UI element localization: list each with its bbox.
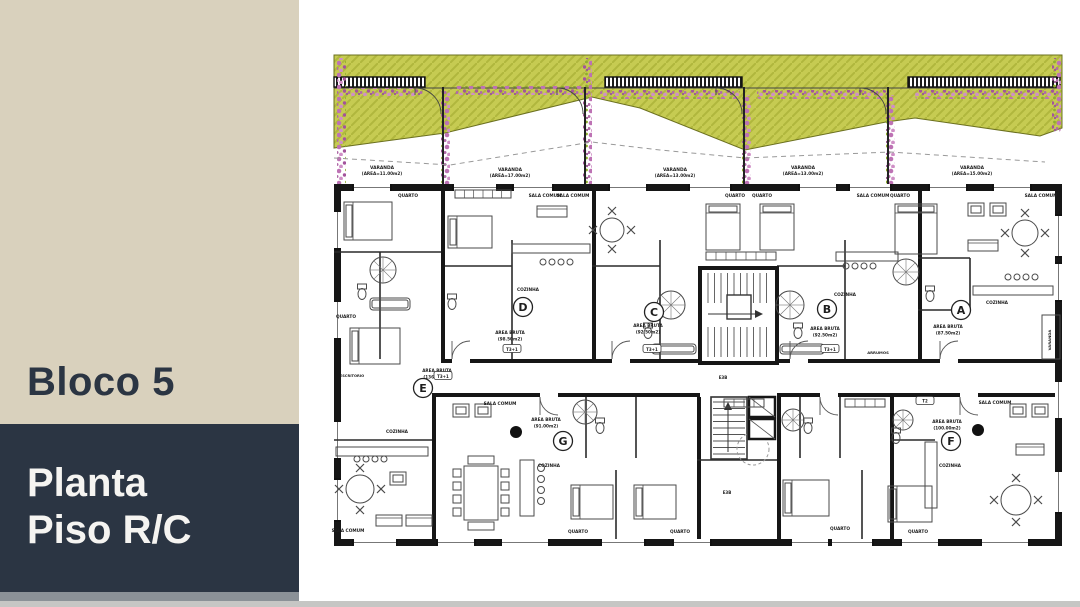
- sofa: [1016, 444, 1044, 455]
- room-label: SALA COMUM: [332, 528, 365, 534]
- window-jamb: [500, 539, 502, 546]
- wall-segment: [978, 393, 1055, 397]
- armchair-seat: [1013, 407, 1023, 414]
- armchair: [390, 472, 406, 485]
- flower-strip-horizontal: [600, 90, 740, 99]
- window-jamb: [890, 184, 892, 191]
- terrain-line: [334, 142, 1045, 165]
- unit-area-value: (92.50m2): [636, 330, 660, 335]
- balcony-area-label: (AREA=13.00m2): [783, 171, 824, 176]
- sofa: [406, 515, 432, 526]
- window-jamb: [608, 184, 610, 191]
- window-jamb: [548, 539, 550, 546]
- unit-area-value: (92.50m2): [813, 333, 837, 338]
- balcony-area-label: (AREA=11.00m2): [362, 171, 403, 176]
- chair-x: [608, 207, 616, 215]
- kitchen-counter: [512, 244, 590, 253]
- bed-pillow: [636, 488, 642, 516]
- shower-spoke: [790, 305, 800, 315]
- armchair-seat: [478, 407, 488, 414]
- footer-strip-light: [0, 601, 1080, 607]
- shower-spoke: [790, 295, 800, 305]
- wall-segment: [958, 359, 1055, 363]
- armchair-seat: [456, 407, 466, 414]
- window-jamb: [848, 184, 850, 191]
- window-jamb: [334, 210, 341, 212]
- window-jamb: [790, 539, 792, 546]
- unit-letter: C: [650, 306, 658, 319]
- kitchen-counter: [520, 460, 534, 516]
- window-jamb: [1028, 539, 1030, 546]
- room-label: SALA COMUM: [979, 400, 1012, 406]
- window-jamb: [334, 520, 341, 522]
- bed-pillow: [450, 219, 456, 245]
- window-jamb: [1030, 184, 1032, 191]
- bed-pillow: [709, 206, 737, 212]
- armchair: [1010, 404, 1026, 417]
- wall-segment: [838, 393, 960, 397]
- unit-letter: G: [558, 435, 567, 448]
- chair-x: [1001, 229, 1009, 237]
- chair: [501, 508, 509, 516]
- window-jamb: [938, 539, 940, 546]
- window-jamb: [512, 184, 514, 191]
- window-jamb: [1055, 418, 1062, 420]
- round-table: [600, 218, 624, 242]
- wall-segment: [592, 188, 596, 359]
- window-jamb: [872, 539, 874, 546]
- armchair-seat: [993, 206, 1003, 213]
- toilet: [804, 423, 812, 434]
- chair: [468, 456, 494, 464]
- armchair-seat: [1035, 407, 1045, 414]
- window-jamb: [334, 338, 341, 340]
- hob-circle: [852, 263, 858, 269]
- flower-strip-horizontal: [757, 90, 887, 99]
- flower-strip-vertical: [337, 58, 346, 188]
- bed: [448, 216, 492, 248]
- unit-area-label: AREA BRUTA: [531, 417, 561, 422]
- hob-circle: [549, 259, 555, 265]
- window-jamb: [396, 539, 398, 546]
- window-jamb: [600, 539, 602, 546]
- toilet: [448, 299, 456, 310]
- chair: [501, 482, 509, 490]
- hob-circle: [558, 259, 564, 265]
- window-jamb: [1055, 470, 1062, 472]
- floor-title: Planta Piso R/C: [27, 460, 191, 554]
- chair-x: [1021, 249, 1029, 257]
- block-title: Bloco 5: [27, 360, 175, 405]
- floor-title-line2: Piso R/C: [27, 507, 191, 554]
- wall-segment: [630, 359, 700, 363]
- chair-x: [356, 506, 364, 514]
- wall-segment: [441, 359, 452, 363]
- hob-circle: [1014, 274, 1020, 280]
- chair-x: [990, 496, 998, 504]
- hob-circle: [363, 456, 369, 462]
- window-jamb: [830, 539, 832, 546]
- door-arc: [452, 341, 470, 359]
- window-jamb: [966, 184, 968, 191]
- stair-core: [700, 268, 777, 465]
- chair-x: [1021, 209, 1029, 217]
- round-table: [1012, 220, 1038, 246]
- wall-segment: [558, 393, 700, 397]
- armchair-seat: [971, 206, 981, 213]
- sofa: [376, 515, 402, 526]
- room-label: QUARTO: [670, 529, 690, 535]
- unit-area-value: (91.00m2): [534, 424, 558, 429]
- toilet: [596, 423, 604, 434]
- window-jamb: [334, 300, 341, 302]
- shower-spoke: [780, 295, 790, 305]
- chair: [453, 508, 461, 516]
- shower-spoke: [785, 412, 793, 420]
- room-label: SALA COMUM: [857, 193, 890, 199]
- shower-spoke: [897, 272, 906, 281]
- room-label: ESCRITORIO: [340, 374, 364, 378]
- window-jamb: [992, 184, 994, 191]
- unit-area-label: AREA BRUTA: [810, 326, 840, 331]
- window-jamb: [1055, 262, 1062, 264]
- chair-x: [608, 245, 616, 253]
- balcony-area-label: (AREA=17.00m2): [490, 173, 531, 178]
- stair-landing: [727, 295, 751, 319]
- terrain-dashed-line: [334, 142, 1045, 165]
- round-table: [1001, 485, 1031, 515]
- room-label: E3B: [719, 375, 728, 380]
- armchair: [453, 404, 469, 417]
- flower-strip-horizontal: [340, 88, 423, 97]
- chair-x: [1034, 496, 1042, 504]
- window-jamb: [928, 184, 930, 191]
- unit-area-value: (100.00m2): [933, 426, 960, 431]
- window-jamb: [334, 248, 341, 250]
- wall-segment: [432, 393, 436, 539]
- bed: [634, 485, 676, 519]
- window-jamb: [334, 458, 341, 460]
- wall-segment: [777, 397, 781, 539]
- shower-spoke: [896, 413, 903, 420]
- balcony-area-label: (AREA=15.00m2): [952, 171, 993, 176]
- floor-title-line1: Planta: [27, 460, 191, 507]
- unit-letter: E: [419, 382, 427, 395]
- window-jamb: [646, 184, 648, 191]
- shower-spoke: [661, 295, 671, 305]
- hob-circle: [1005, 274, 1011, 280]
- window-jamb: [980, 539, 982, 546]
- tipologia-tag: T3+1: [646, 347, 658, 352]
- unit-area-label: AREA BRUTA: [495, 330, 525, 335]
- window-jamb: [1055, 256, 1062, 258]
- chair-x: [1012, 518, 1020, 526]
- window-jamb: [1055, 214, 1062, 216]
- room-label: QUARTO: [725, 193, 745, 199]
- column-dot: [972, 424, 984, 436]
- balcony-area-label: (AREA=13.00m2): [655, 173, 696, 178]
- shower-spoke: [577, 412, 585, 420]
- railing-bar: [334, 77, 425, 87]
- hob-circle: [354, 456, 360, 462]
- sofa: [968, 240, 998, 251]
- tipologia-tag: T3+1: [824, 347, 836, 352]
- armchair-seat: [393, 475, 403, 482]
- tipologia-tag: T3+1: [437, 374, 449, 379]
- shower-spoke: [577, 404, 585, 412]
- room-label: QUARTO: [908, 529, 928, 535]
- unit-area-label: AREA BRUTA: [932, 419, 962, 424]
- window-jamb: [352, 184, 354, 191]
- unit-area-label: AREA BRUTA: [933, 324, 963, 329]
- hob-circle: [870, 263, 876, 269]
- room-label: QUARTO: [398, 193, 418, 199]
- unit-area-value: (98.50m2): [498, 337, 522, 342]
- room-label: SALA COMUM: [557, 193, 590, 199]
- wall-segment: [441, 188, 445, 363]
- shower-spoke: [780, 305, 790, 315]
- bed: [706, 204, 740, 250]
- window-jamb: [798, 184, 800, 191]
- flower-strip-horizontal: [915, 90, 1055, 99]
- armchair: [990, 203, 1006, 216]
- footer-strip-dark: [0, 592, 299, 601]
- bed: [783, 480, 829, 516]
- hob-circle: [540, 259, 546, 265]
- bathtub-inner: [372, 300, 408, 308]
- room-label: SALA COMUM: [484, 401, 517, 407]
- wall-segment: [777, 393, 820, 397]
- unit-area-value: (87.50m2): [936, 331, 960, 336]
- window-jamb: [688, 184, 690, 191]
- chair-x: [627, 226, 635, 234]
- shower-spoke: [374, 261, 383, 270]
- room-label: COZINHA: [939, 463, 962, 469]
- window-jamb: [644, 539, 646, 546]
- unit-area-label: AREA BRUTA: [633, 323, 663, 328]
- shower-spoke: [383, 270, 392, 279]
- window-jamb: [730, 184, 732, 191]
- bed-pillow: [352, 331, 358, 361]
- room-label: QUARTO: [336, 314, 356, 320]
- hob-circle: [1023, 274, 1029, 280]
- tipologia-tag: T2: [922, 399, 928, 404]
- bed: [760, 204, 794, 250]
- column-dot: [510, 426, 522, 438]
- unit-letter: A: [957, 304, 966, 317]
- shower-spoke: [903, 420, 910, 427]
- tipologia-tag: T3+1: [506, 347, 518, 352]
- wall-segment: [470, 359, 612, 363]
- hob-circle: [567, 259, 573, 265]
- window-jamb: [1055, 380, 1062, 382]
- chair: [453, 495, 461, 503]
- bed: [571, 485, 613, 519]
- unit-letter: F: [947, 435, 955, 448]
- room-label: VARANDA: [1047, 330, 1052, 351]
- sofa: [537, 206, 567, 217]
- window-jamb: [552, 184, 554, 191]
- window-jamb: [474, 539, 476, 546]
- room-label: COZINHA: [834, 292, 857, 298]
- wall-segment: [697, 397, 701, 539]
- bed-pillow: [785, 483, 791, 513]
- window-jamb: [1055, 512, 1062, 514]
- window-jamb: [1055, 300, 1062, 302]
- window-jamb: [334, 478, 341, 480]
- chair: [453, 469, 461, 477]
- armchair: [968, 203, 984, 216]
- chair: [453, 482, 461, 490]
- stool-circle: [538, 476, 545, 483]
- chair-x: [356, 464, 364, 472]
- hob-circle: [1032, 274, 1038, 280]
- bed: [344, 202, 392, 240]
- door-arc: [612, 341, 630, 359]
- window-jamb: [452, 184, 454, 191]
- unit-letter: D: [518, 301, 527, 314]
- bed-pillow: [346, 205, 352, 237]
- room-label: SALA COMUM: [1025, 193, 1058, 199]
- room-label: COZINHA: [986, 300, 1009, 306]
- flower-strip-horizontal: [455, 86, 585, 95]
- room-label: E3B: [723, 490, 732, 495]
- door-arc: [820, 397, 838, 415]
- bed-pillow: [573, 488, 579, 516]
- window-jamb: [390, 184, 392, 191]
- armchair: [1032, 404, 1048, 417]
- stool-circle: [538, 498, 545, 505]
- kitchen-counter: [925, 442, 937, 508]
- wall-segment: [432, 393, 540, 397]
- railing-bar: [908, 77, 1060, 87]
- hob-circle: [372, 456, 378, 462]
- page: QUARTOQUARTOQUARTOQUARTOQUARTOQUARTOQUAR…: [0, 0, 1080, 607]
- kitchen-counter: [973, 286, 1053, 295]
- chair-x: [377, 485, 385, 493]
- chair: [501, 469, 509, 477]
- room-label: COZINHA: [386, 429, 409, 435]
- toilet: [794, 328, 802, 339]
- stool-circle: [538, 487, 545, 494]
- room-label: ARRUMOS: [867, 350, 889, 355]
- room-label: QUARTO: [568, 529, 588, 535]
- window-jamb: [836, 184, 838, 191]
- chair: [501, 495, 509, 503]
- shower-spoke: [906, 263, 915, 272]
- bathtub-inner: [782, 346, 822, 352]
- hob-circle: [381, 456, 387, 462]
- hob-circle: [861, 263, 867, 269]
- shower-spoke: [906, 272, 915, 281]
- shower-spoke: [671, 305, 681, 315]
- window-jamb: [334, 420, 341, 422]
- room-label: COZINHA: [538, 463, 561, 469]
- toilet: [358, 289, 366, 300]
- chair-x: [1041, 229, 1049, 237]
- room-label: QUARTO: [752, 193, 772, 199]
- shower-spoke: [785, 420, 793, 428]
- bed-pillow: [763, 206, 791, 212]
- wall-segment: [808, 359, 940, 363]
- door-arc: [940, 341, 958, 359]
- window-jamb: [900, 539, 902, 546]
- window-jamb: [352, 539, 354, 546]
- shower-spoke: [896, 420, 903, 427]
- window-jamb: [828, 539, 830, 546]
- shower-spoke: [903, 413, 910, 420]
- door-arc: [540, 397, 558, 415]
- shower-spoke: [671, 295, 681, 305]
- kitchen-counter: [336, 447, 428, 456]
- shower-spoke: [383, 261, 392, 270]
- toilet: [926, 291, 934, 302]
- shower-spoke: [374, 270, 383, 279]
- window-jamb: [672, 539, 674, 546]
- room-label: QUARTO: [830, 526, 850, 532]
- window-jamb: [436, 539, 438, 546]
- chair-x: [1012, 474, 1020, 482]
- closet: [706, 252, 776, 260]
- railing-bar: [605, 77, 742, 87]
- room-label: QUARTO: [890, 193, 910, 199]
- door-arc: [960, 397, 978, 415]
- window-jamb: [710, 539, 712, 546]
- round-table: [346, 475, 374, 503]
- chair: [468, 522, 494, 530]
- shower-spoke: [897, 263, 906, 272]
- unit-letter: B: [823, 303, 831, 316]
- bed-pillow: [898, 206, 934, 212]
- room-label: COZINHA: [517, 287, 540, 293]
- dining-table: [464, 466, 498, 520]
